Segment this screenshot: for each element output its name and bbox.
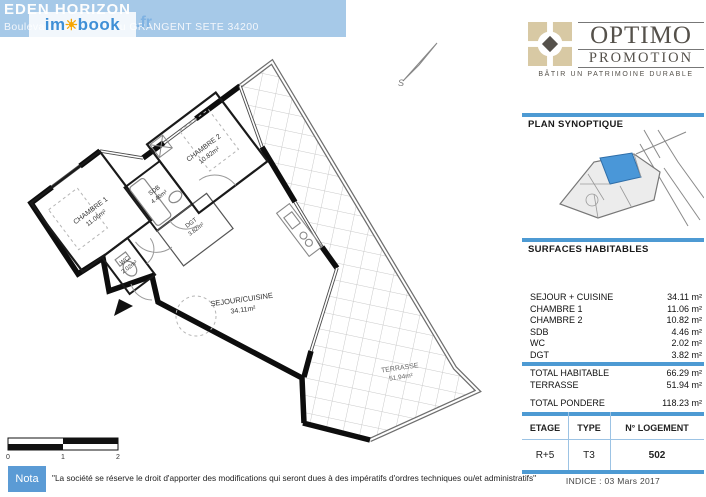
logement-data-row: R+5 T3 502: [522, 450, 704, 461]
surfaces-title: SURFACES HABITABLES: [528, 244, 649, 255]
imobook-watermark: im☀book: [29, 12, 136, 38]
logement-header-row: ETAGE TYPE N° LOGEMENT: [522, 423, 704, 433]
logo-tagline: BÂTIR UN PATRIMOINE DURABLE: [528, 71, 704, 78]
value-type: T3: [568, 450, 610, 461]
total-value: 66.29 m²: [666, 368, 702, 380]
logement-col-sep: [568, 412, 569, 474]
watermark-fr-suffix: .fr: [136, 14, 152, 32]
entry-door-arc: [131, 284, 152, 300]
watermark-part1: im: [45, 15, 66, 35]
compass-letter: S: [398, 78, 404, 88]
north-arrow: S: [398, 43, 437, 88]
table-row: SEJOUR + CUISINE34.11 m²: [530, 292, 702, 304]
total-label: TERRASSE: [530, 380, 579, 392]
synoptique-map: [540, 128, 704, 232]
header-type: TYPE: [568, 423, 610, 433]
scale-bar: 0 1 2: [6, 438, 120, 461]
value-logement: 502: [610, 450, 704, 461]
logement-header-sep: [522, 439, 704, 440]
header-logement: N° LOGEMENT: [610, 423, 704, 433]
room-label: SDB: [530, 327, 549, 339]
table-row: CHAMBRE 111.06 m²: [530, 304, 702, 316]
nota-badge: Nota: [8, 466, 46, 492]
room-label: SEJOUR + CUISINE: [530, 292, 613, 304]
room-value: 3.82 m²: [671, 350, 702, 362]
room-label: WC: [530, 338, 545, 350]
table-row: TOTAL HABITABLE66.29 m²: [530, 368, 702, 380]
header-etage: ETAGE: [522, 423, 568, 433]
scale-2: 2: [116, 454, 120, 461]
pondere-value: 118.23 m²: [662, 398, 702, 410]
totals-table: TOTAL HABITABLE66.29 m² TERRASSE51.94 m²: [530, 368, 702, 391]
table-row: CHAMBRE 210.82 m²: [530, 315, 702, 327]
divider-bar-3: [522, 362, 704, 366]
table-row: SDB4.46 m²: [530, 327, 702, 339]
label-sejour: SEJOUR/CUISINE: [210, 291, 274, 309]
room-label: DGT: [530, 350, 549, 362]
optimo-logo-icon: [528, 22, 572, 66]
table-row: DGT3.82 m²: [530, 350, 702, 362]
sun-icon: ☀: [65, 16, 79, 34]
room-value: 4.46 m²: [671, 327, 702, 339]
total-value: 51.94 m²: [666, 380, 702, 392]
room-value: 10.82 m²: [666, 315, 702, 327]
logement-col-sep: [610, 412, 611, 474]
room-value: 11.06 m²: [667, 304, 702, 316]
divider-bar-1: [522, 113, 704, 117]
room-value: 34.11 m²: [667, 292, 702, 304]
table-row: TERRASSE51.94 m²: [530, 380, 702, 392]
nota-text: "La société se réserve le droit d'apport…: [52, 473, 652, 483]
room-value: 2.02 m²: [671, 338, 702, 350]
table-row: WC2.02 m²: [530, 338, 702, 350]
scale-1: 1: [61, 454, 65, 461]
divider-bar-4: [522, 412, 704, 416]
scale-0: 0: [6, 454, 10, 461]
terrace-area: [240, 62, 478, 440]
entry-arrow: [114, 299, 133, 316]
value-etage: R+5: [522, 450, 568, 461]
room-label: CHAMBRE 2: [530, 315, 583, 327]
total-label: TOTAL HABITABLE: [530, 368, 609, 380]
watermark-part2: book: [78, 15, 121, 35]
label-sejour-area: 34.11m²: [230, 305, 257, 316]
optimo-logo: OPTIMO PROMOTION BÂTIR UN PATRIMOINE DUR…: [528, 22, 704, 78]
logo-name-optimo: OPTIMO: [578, 23, 704, 50]
logo-name-promotion: PROMOTION: [578, 50, 704, 68]
divider-bar-2: [522, 238, 704, 242]
surfaces-table: SEJOUR + CUISINE34.11 m² CHAMBRE 111.06 …: [530, 292, 702, 361]
pondere-row: TOTAL PONDERE118.23 m²: [530, 398, 702, 410]
pondere-label: TOTAL PONDERE: [530, 398, 605, 410]
room-label: CHAMBRE 1: [530, 304, 583, 316]
